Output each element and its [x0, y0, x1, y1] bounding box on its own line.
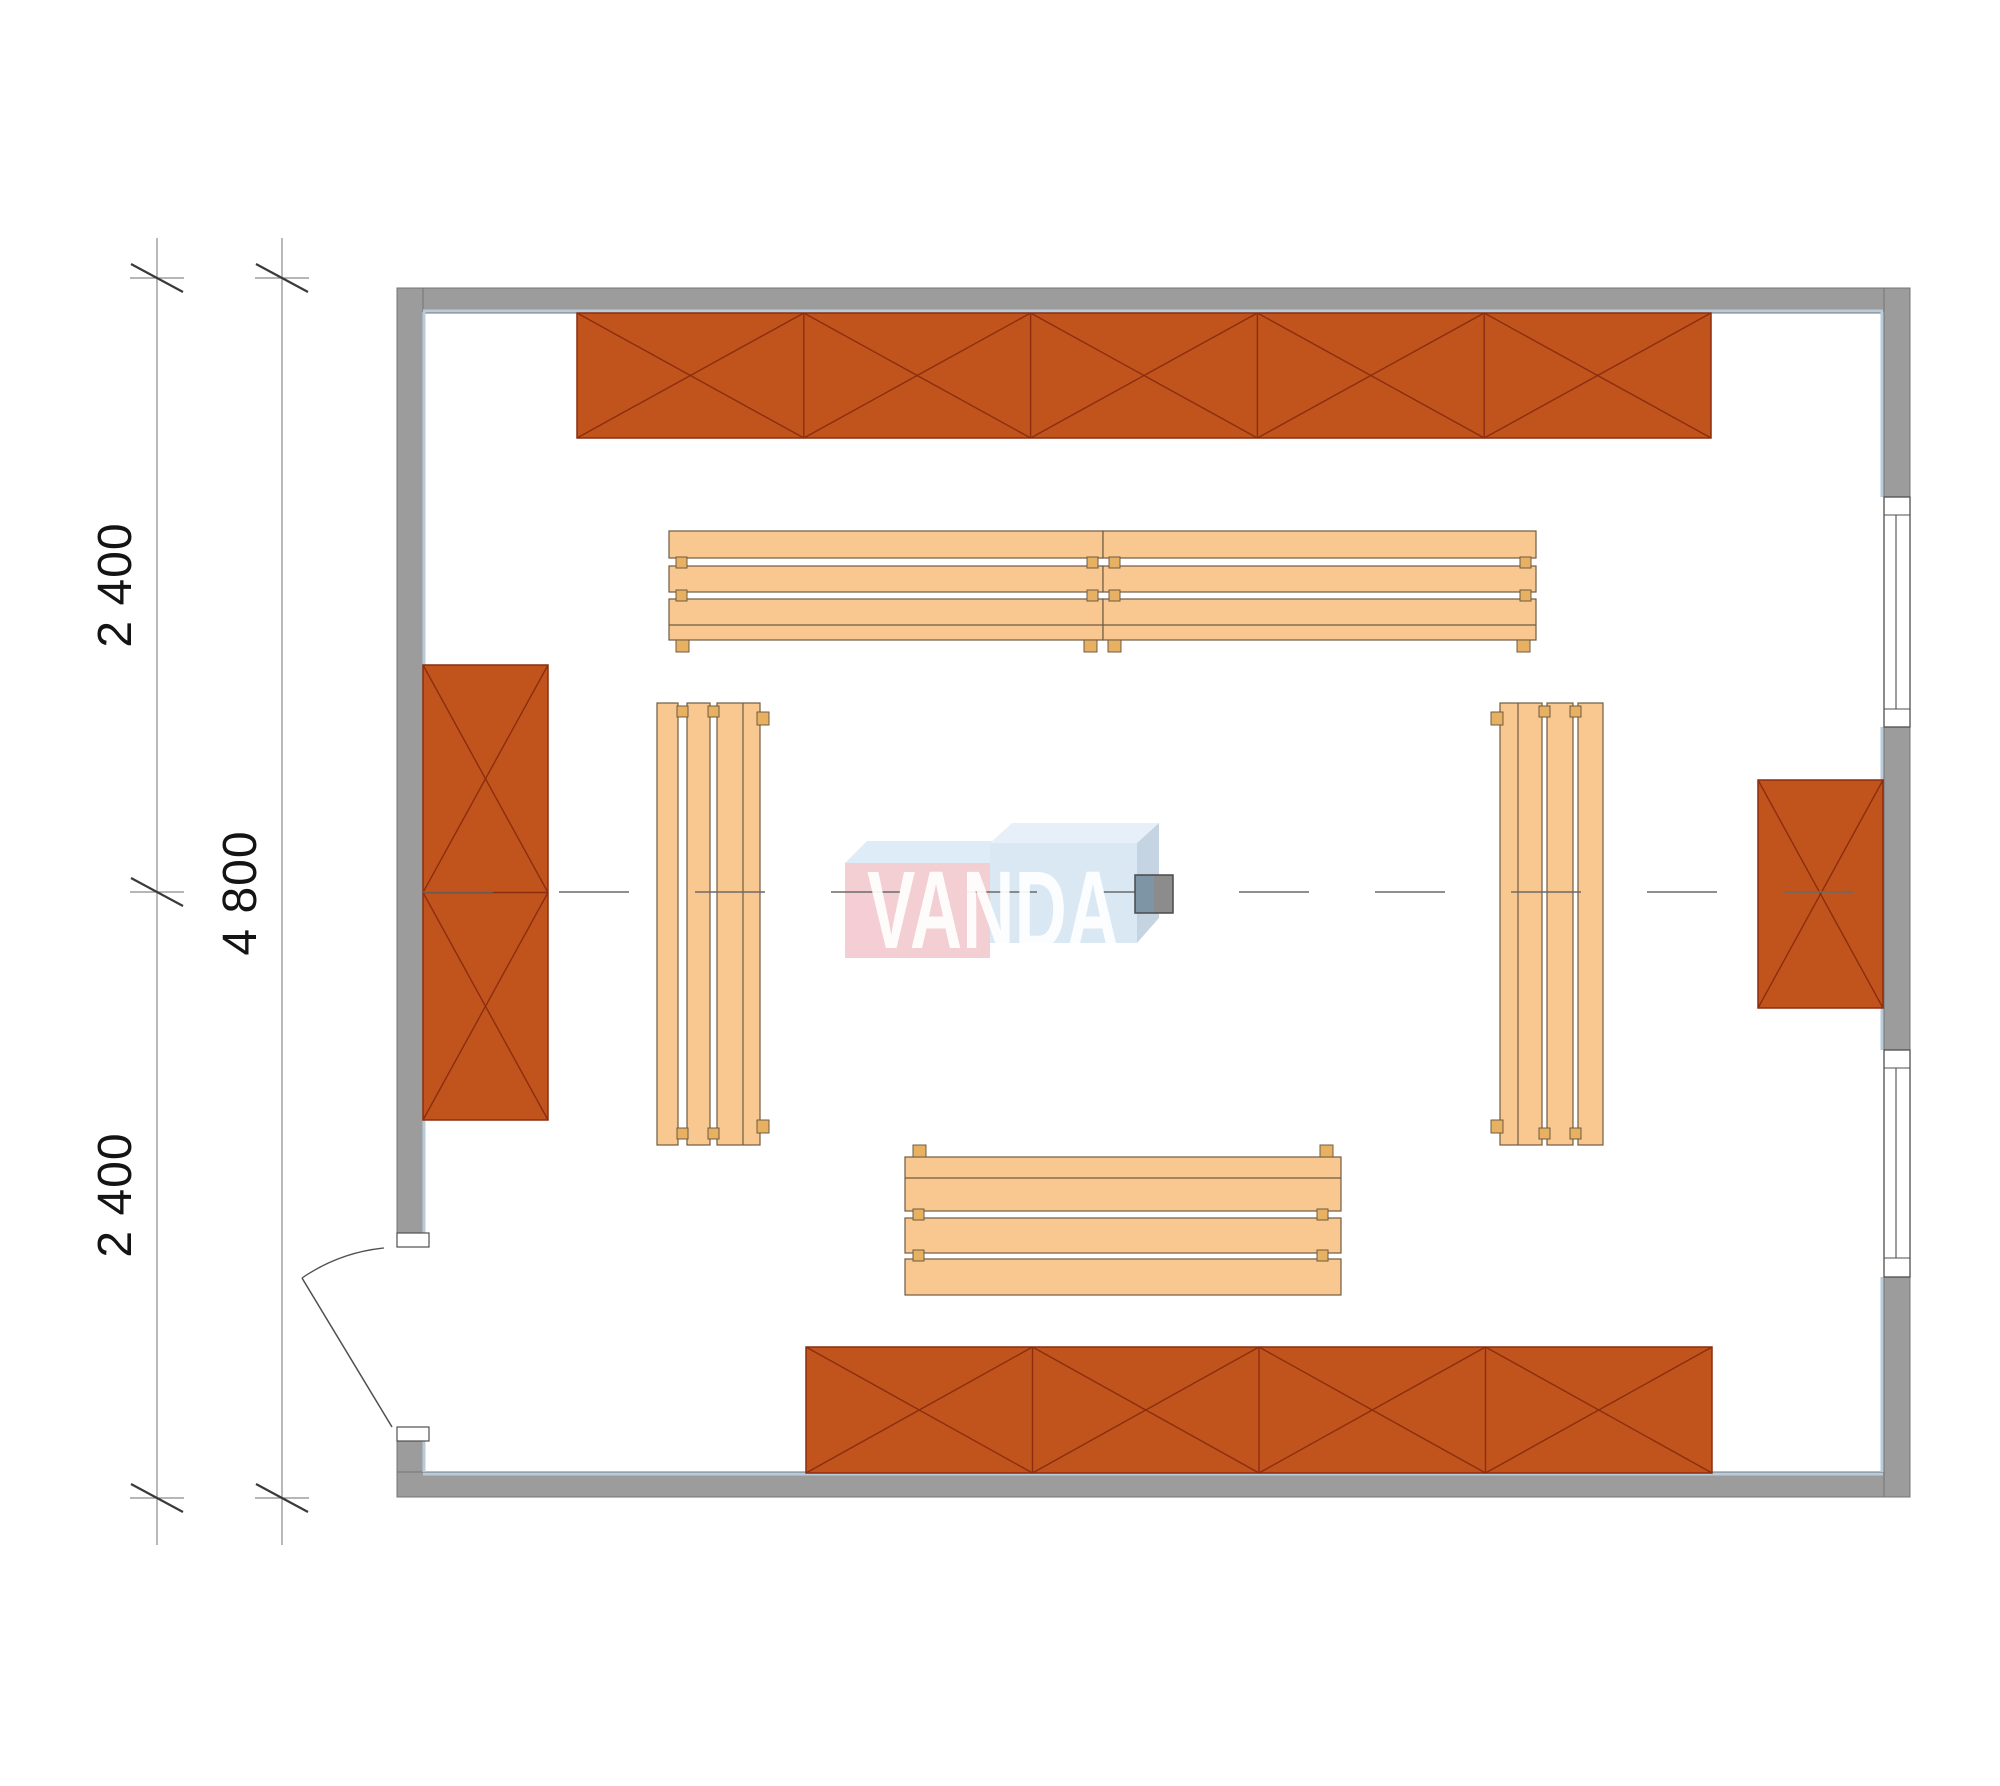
bench-slat-tab [1109, 557, 1120, 568]
dim-label-bottom-2400: 2 400 [89, 1132, 142, 1257]
floor-plan-canvas: VANDA 2 400 2 400 4 800 [0, 0, 2000, 1786]
floor-plan-page: VANDA 2 400 2 400 4 800 [0, 0, 2000, 1786]
bench-slat-tab [913, 1209, 924, 1220]
bench-top-board [1103, 566, 1536, 592]
bench-right-board [1500, 703, 1542, 1145]
bench-foot [913, 1145, 926, 1157]
bench-bottom-board [905, 1259, 1341, 1295]
bench-slat-tab [677, 706, 688, 717]
bench-left-board [717, 703, 760, 1145]
bench-slat-tab [708, 1128, 719, 1139]
bench-slat-tab [1539, 1128, 1550, 1139]
window-right-upper [1884, 497, 1910, 727]
bench-foot [1491, 712, 1503, 725]
bench-foot [1320, 1145, 1333, 1157]
bench-top-board [669, 531, 1103, 558]
wall-left-upper [397, 288, 423, 1233]
bench-foot [1084, 640, 1097, 652]
door-leaf [302, 1278, 392, 1427]
bench-slat-tab [1109, 590, 1120, 601]
bench-foot [1491, 1120, 1503, 1133]
bench-slat-tab [1317, 1209, 1328, 1220]
door-jamb-top [397, 1233, 429, 1247]
bench-slat-tab [1087, 590, 1098, 601]
bench-foot [1517, 640, 1530, 652]
dim-label-total-4800: 4 800 [214, 830, 267, 955]
wall-bottom [397, 1472, 1910, 1497]
bench-slat-tab [676, 557, 687, 568]
bench-slat-tab [1087, 557, 1098, 568]
bench-bottom-board [905, 1157, 1341, 1211]
heater-right-half [1154, 875, 1173, 913]
bench-slat-tab [1520, 557, 1531, 568]
door-jamb-bottom [397, 1427, 429, 1441]
bench-top-board [1103, 599, 1536, 640]
wall-right-middle [1884, 727, 1910, 1050]
bench-slat-tab [677, 1128, 688, 1139]
wall-right-upper [1884, 288, 1910, 497]
bench-foot [757, 1120, 769, 1133]
bench-left-board [687, 703, 710, 1145]
watermark-text: VANDA [867, 849, 1119, 972]
bench-foot [676, 640, 689, 652]
bench-right-board [1547, 703, 1573, 1145]
bench-foot [757, 712, 769, 725]
heater-left-half [1135, 875, 1154, 913]
door-swing-arc [302, 1248, 384, 1278]
wall-right-lower [1884, 1277, 1910, 1497]
bench-top-board [669, 599, 1103, 640]
bench-slat-tab [1570, 706, 1581, 717]
window-right-lower [1884, 1050, 1910, 1277]
bench-top-board [1103, 531, 1536, 558]
bench-slat-tab [1539, 706, 1550, 717]
logo-box-right-top [990, 823, 1159, 843]
bench-slat-tab [913, 1250, 924, 1261]
bench-foot [1108, 640, 1121, 652]
wall-top [397, 288, 1910, 313]
bench-right-board [1578, 703, 1603, 1145]
dim-label-top-2400: 2 400 [89, 522, 142, 647]
bench-slat-tab [1317, 1250, 1328, 1261]
bench-slat-tab [1570, 1128, 1581, 1139]
bench-bottom-board [905, 1218, 1341, 1253]
bench-slat-tab [1520, 590, 1531, 601]
bench-left-board [657, 703, 678, 1145]
bench-slat-tab [676, 590, 687, 601]
bench-top-board [669, 566, 1103, 592]
bench-slat-tab [708, 706, 719, 717]
